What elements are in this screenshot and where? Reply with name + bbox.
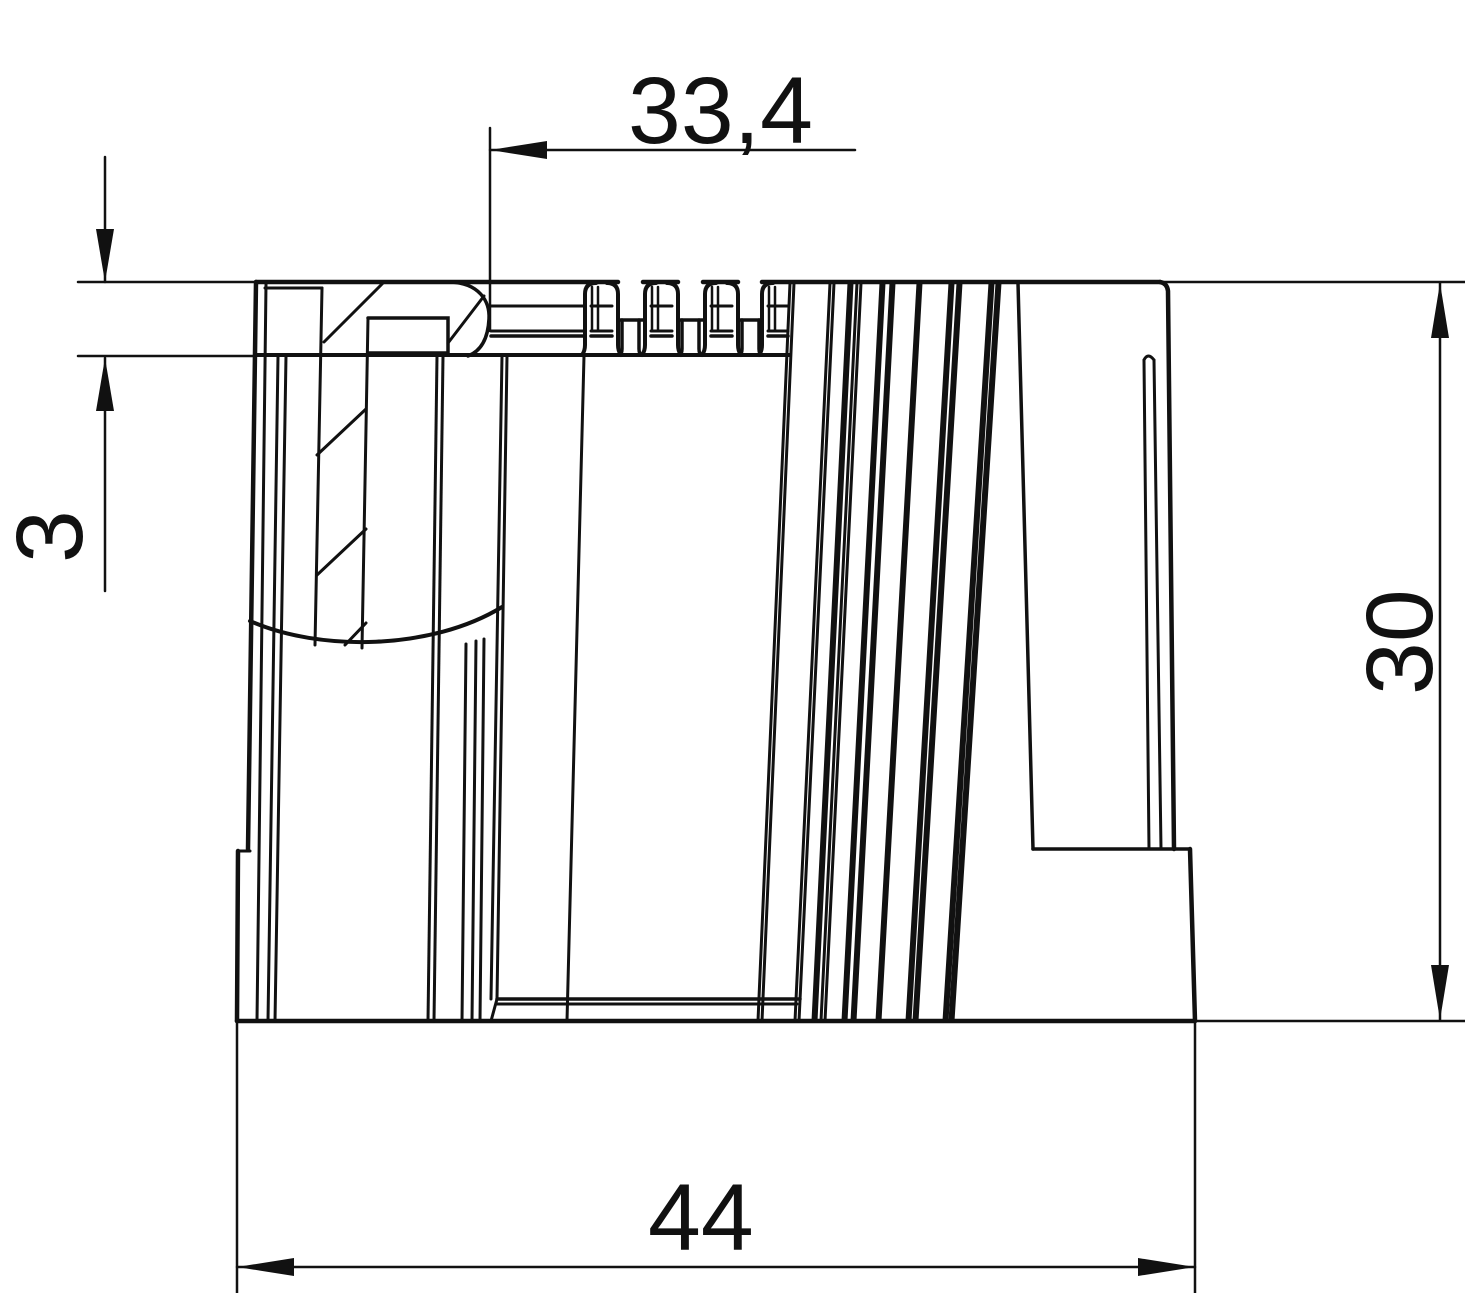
- base-right-edge: [1190, 849, 1195, 1021]
- part-outline: [237, 282, 1195, 1021]
- arrowhead-right-icon: [1138, 1258, 1195, 1276]
- chamfer-band-left: [315, 288, 322, 645]
- right-slot-wall: [1144, 360, 1161, 849]
- groove-rectangle: [368, 318, 448, 353]
- dimension-44: 44: [237, 1023, 1195, 1293]
- hatch-line: [317, 529, 366, 575]
- base-left-edge: [237, 851, 238, 1021]
- rib-line: [795, 283, 834, 1021]
- dim-33-4-label: 33,4: [628, 58, 813, 164]
- flange-corner-radius: [450, 282, 489, 356]
- rib-section-boundary: [1018, 283, 1033, 849]
- arrowhead-left-icon: [237, 1258, 294, 1276]
- rib-line: [843, 283, 884, 1021]
- right-slot-top: [1144, 356, 1154, 360]
- arrowhead-up-icon: [96, 358, 114, 411]
- technical-drawing: 33,4 3 30 44: [0, 0, 1465, 1293]
- dimension-3: 3: [0, 157, 256, 591]
- arrowhead-left-icon: [490, 141, 547, 159]
- dimension-33-4: 33,4: [490, 58, 855, 331]
- tooth-slot: [712, 287, 718, 331]
- right-section: [1144, 356, 1161, 849]
- tooth-wall: [582, 283, 596, 355]
- skirt-line: [480, 639, 484, 1021]
- ribbed-section: [758, 283, 1033, 1021]
- hatch-line: [317, 409, 366, 455]
- notch-wall: [619, 320, 642, 355]
- right-edge: [1160, 282, 1174, 849]
- rib-line: [813, 283, 852, 1021]
- flange-detail: [250, 282, 800, 1021]
- tooth-slot: [592, 287, 598, 331]
- tooth-slot: [652, 287, 658, 331]
- chamfer-diagonal: [324, 283, 383, 342]
- chamfer-band-right: [362, 318, 368, 648]
- notch-wall: [679, 320, 702, 355]
- left-edge: [248, 282, 256, 849]
- rib-line: [950, 283, 1000, 1021]
- notch-wall: [739, 320, 762, 355]
- flange-inner-edge: [257, 284, 266, 1021]
- arrowhead-down-icon: [1431, 965, 1449, 1020]
- arrowhead-up-icon: [1431, 283, 1449, 338]
- arrowhead-down-icon: [96, 229, 114, 282]
- technical-drawing-canvas: 33,4 3 30 44: [0, 0, 1465, 1293]
- tooth-slot: [769, 287, 775, 331]
- rib-line: [758, 283, 794, 1021]
- skirt-line: [472, 641, 476, 1021]
- center-face-line: [567, 356, 584, 1021]
- castellation-crown: [256, 283, 790, 355]
- dim-44-label: 44: [648, 1165, 754, 1271]
- center-face-left: [491, 356, 502, 999]
- dim-3-label: 3: [0, 510, 103, 563]
- inner-bottom-diagonal: [491, 999, 497, 1021]
- dimension-30: 30: [1163, 282, 1465, 1021]
- skirt-line: [462, 644, 466, 1021]
- dim-30-label: 30: [1347, 589, 1453, 695]
- chamfer-diagonal: [448, 296, 484, 343]
- flange-bottom-curve: [250, 607, 502, 642]
- rib-line: [821, 283, 861, 1021]
- center-face-left: [497, 356, 507, 999]
- rib-line: [852, 283, 894, 1021]
